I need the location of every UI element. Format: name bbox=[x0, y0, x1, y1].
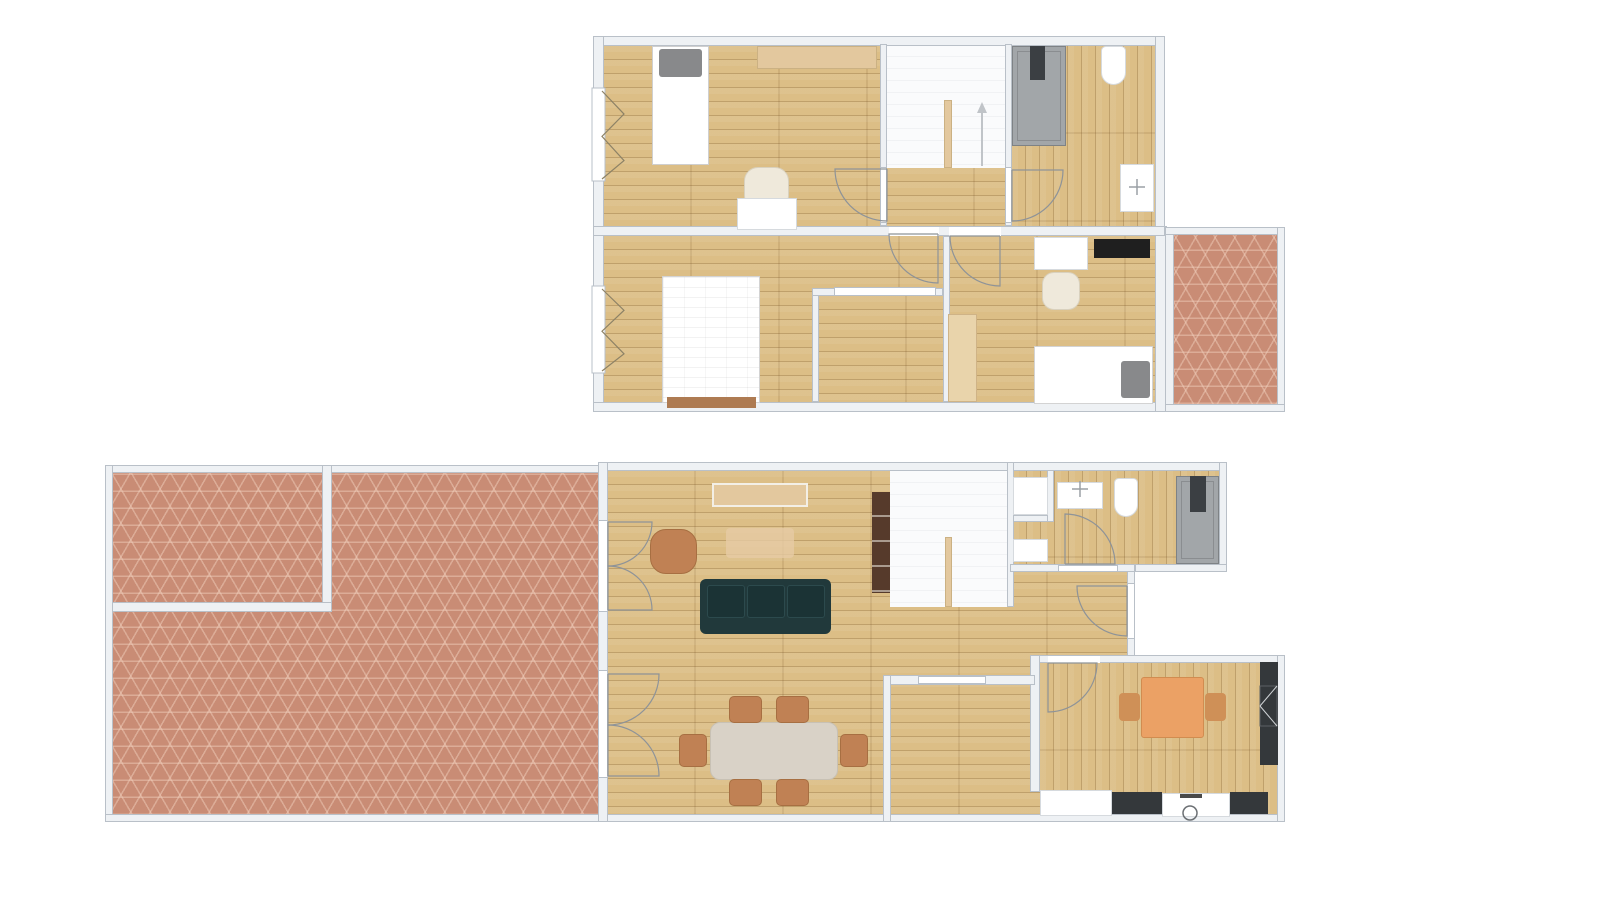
sofa-cushion-1 bbox=[707, 585, 745, 618]
terrace-door-opening-bottom bbox=[598, 670, 608, 778]
armchair bbox=[650, 529, 697, 574]
sofa-cushion-2 bbox=[747, 585, 785, 618]
living-rug bbox=[726, 528, 794, 558]
ground-shower-fixture bbox=[1190, 476, 1206, 512]
dining-chair-top-2 bbox=[776, 696, 809, 723]
dining-table bbox=[710, 722, 838, 780]
ground-floor bbox=[0, 0, 1600, 900]
sofa-cushion-3 bbox=[787, 585, 825, 618]
kitchen-chair-left bbox=[1119, 693, 1140, 721]
ground-stair-railing bbox=[945, 537, 952, 607]
kitchen-counter-bottom-left bbox=[1112, 792, 1162, 814]
kitchen-chair-right bbox=[1205, 693, 1226, 721]
bath-wall-right bbox=[1219, 462, 1227, 572]
kitchen-counter-right bbox=[1260, 662, 1278, 765]
closet-wall-right bbox=[1047, 470, 1054, 522]
ground-wall-top bbox=[598, 462, 1227, 471]
dining-chair-bottom-2 bbox=[776, 779, 809, 806]
hall-cabinet bbox=[1013, 539, 1048, 562]
bathroom-sink bbox=[1057, 482, 1103, 509]
terrace-inner-wall-horizontal bbox=[112, 602, 332, 612]
ground-toilet bbox=[1114, 478, 1138, 517]
dining-chair-bottom-1 bbox=[729, 779, 762, 806]
range-knobs bbox=[1180, 794, 1202, 798]
terrace-wall-top bbox=[105, 465, 605, 473]
terrace-inner-wall-vertical bbox=[322, 465, 332, 612]
kitchen-counter-bottom-right bbox=[1230, 792, 1268, 814]
terrace-door-opening-top bbox=[598, 520, 608, 612]
back-doorway bbox=[1127, 583, 1135, 639]
bookshelf bbox=[872, 492, 890, 593]
dining-chair-top-1 bbox=[729, 696, 762, 723]
terrace-tiles bbox=[112, 472, 601, 815]
terrace-wall-left bbox=[105, 465, 113, 822]
kitchen-doorway bbox=[1048, 656, 1100, 663]
floorplan bbox=[0, 0, 1600, 900]
kitchen-wall-right bbox=[1277, 655, 1285, 822]
dining-chair-right bbox=[840, 734, 868, 767]
sideboard bbox=[712, 483, 808, 507]
bath-wall-bottom bbox=[1135, 564, 1227, 572]
bathroom-sliding-door bbox=[1058, 565, 1118, 572]
kitchen-table bbox=[1141, 677, 1204, 738]
small-room-wall-left bbox=[883, 675, 891, 822]
hall-closet bbox=[1013, 477, 1048, 515]
dining-chair-left bbox=[679, 734, 707, 767]
kitchen-cabinet-white bbox=[1040, 790, 1112, 816]
small-room-sliding-door bbox=[918, 676, 986, 684]
